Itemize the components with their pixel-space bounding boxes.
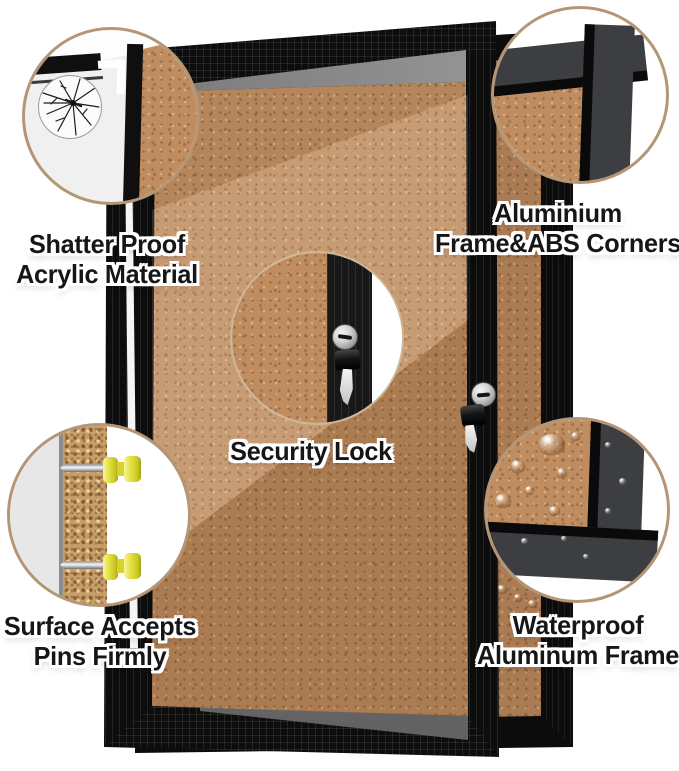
water-drop-icon bbox=[501, 444, 509, 451]
water-drop-icon bbox=[497, 585, 507, 593]
magnified-cork bbox=[230, 251, 330, 425]
callout-pin-surface bbox=[7, 423, 191, 607]
lock-slot-icon bbox=[477, 392, 490, 397]
magnified-cork bbox=[139, 30, 200, 205]
water-drop-icon bbox=[605, 442, 611, 448]
water-drop-icon bbox=[571, 432, 580, 440]
label-line: Frame&ABS Corners bbox=[435, 228, 679, 258]
crack-icon bbox=[38, 75, 102, 139]
magnified-backing bbox=[10, 426, 59, 604]
label-waterproof-frame: Waterproof Aluminum Frame bbox=[477, 610, 679, 670]
lock-icon bbox=[471, 382, 496, 407]
water-drop-icon bbox=[514, 594, 522, 601]
label-line: Pins Firmly bbox=[4, 641, 196, 671]
water-drop-icon bbox=[525, 486, 534, 494]
pushpin-cap bbox=[124, 456, 141, 482]
magnified-background bbox=[372, 251, 404, 425]
water-drop-icon bbox=[495, 494, 511, 507]
acrylic-edge-highlight bbox=[117, 60, 126, 94]
key-icon bbox=[334, 349, 360, 371]
water-drop-icon bbox=[528, 600, 537, 607]
product-feature-infographic: Shatter Proof Acrylic Material Aluminium… bbox=[0, 0, 679, 771]
water-drop-icon bbox=[521, 538, 528, 544]
water-drop-icon bbox=[549, 506, 560, 515]
callout-waterproof-frame bbox=[484, 417, 670, 603]
water-drop-icon bbox=[539, 434, 565, 454]
label-line: Aluminium bbox=[435, 198, 679, 228]
label-line: Aluminum Frame bbox=[477, 640, 679, 670]
magnified-cork-cross-section bbox=[63, 426, 107, 604]
water-drop-icon bbox=[561, 536, 567, 541]
callout-shatterproof-acrylic bbox=[22, 27, 200, 205]
water-drop-icon bbox=[557, 468, 567, 477]
label-line: Shatter Proof bbox=[16, 229, 198, 259]
water-drop-icon bbox=[605, 508, 611, 514]
label-line: Surface Accepts bbox=[4, 611, 196, 641]
pushpin-needle bbox=[60, 561, 104, 569]
key-icon bbox=[460, 403, 487, 427]
label-line: Waterproof bbox=[477, 610, 679, 640]
label-line: Security Lock bbox=[230, 436, 392, 466]
water-drop-icon bbox=[511, 460, 525, 472]
lock-icon bbox=[332, 324, 358, 350]
magnified-aluminium-profile-side bbox=[579, 24, 635, 184]
label-aluminium-corners: Aluminium Frame&ABS Corners bbox=[435, 198, 679, 258]
lock-slot-icon bbox=[338, 334, 352, 340]
water-drop-icon bbox=[583, 554, 589, 559]
water-drop-icon bbox=[619, 478, 626, 485]
pushpin-flange bbox=[103, 554, 118, 580]
pushpin-needle bbox=[60, 464, 104, 472]
callout-aluminium-corner bbox=[491, 6, 669, 184]
label-line: Acrylic Material bbox=[16, 259, 198, 289]
label-shatterproof: Shatter Proof Acrylic Material bbox=[16, 229, 198, 289]
label-security-lock: Security Lock bbox=[230, 436, 392, 466]
pushpin-flange bbox=[103, 457, 118, 483]
callout-security-lock bbox=[230, 251, 404, 425]
label-pin-surface: Surface Accepts Pins Firmly bbox=[4, 611, 196, 671]
magnified-aluminium-profile-bottom bbox=[484, 521, 658, 582]
pushpin-cap bbox=[124, 553, 141, 579]
